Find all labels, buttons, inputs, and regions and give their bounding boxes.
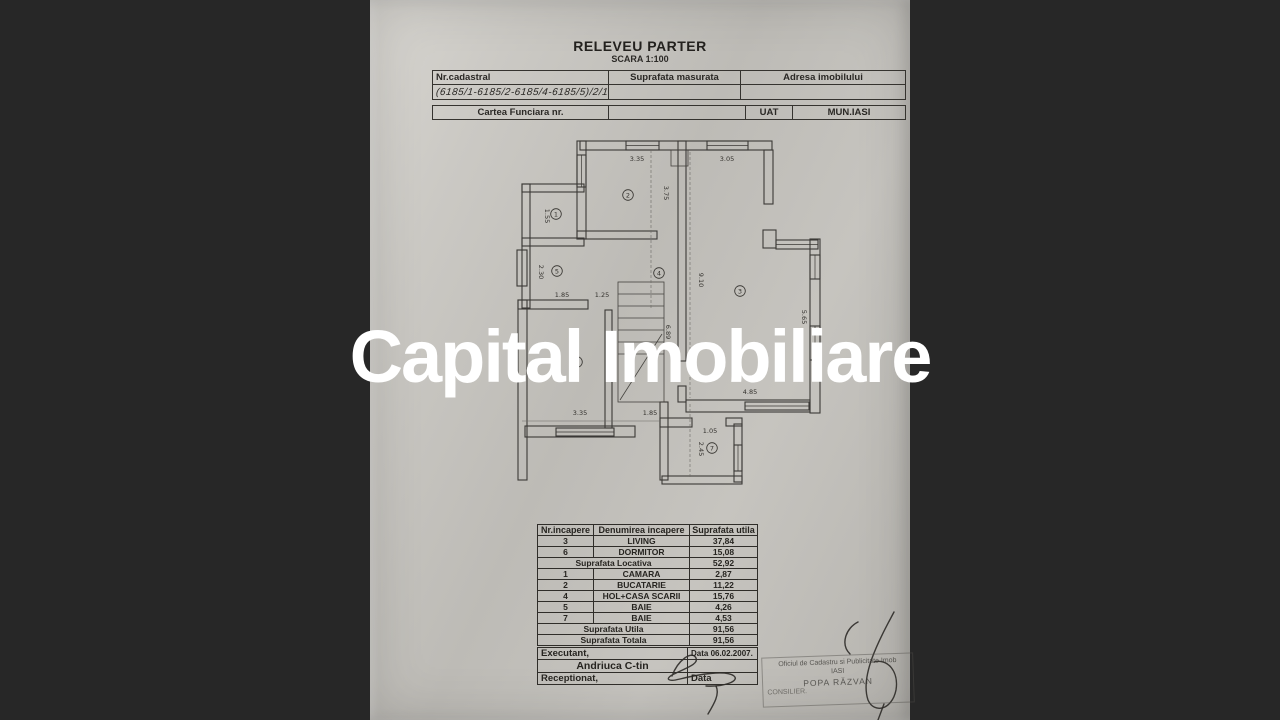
executant-name: Andriuca C-tin — [538, 660, 688, 673]
dimension-label: 3.35 — [630, 155, 644, 163]
room-number-label: 4 — [657, 269, 661, 277]
receptionat-date: Data — [688, 673, 758, 685]
dimension-label: 3.35 — [573, 409, 587, 417]
room-number-label: 1 — [554, 210, 558, 218]
executant-signature-cell — [688, 660, 758, 673]
plan-labels: 3.353.053.751.552.301.851.259.106.895.65… — [537, 155, 808, 456]
cadastre-office-stamp: Oficiul de Cadastru si Publicitate Imob … — [761, 652, 915, 707]
dimension-label: 1.55 — [543, 209, 551, 223]
receptionat-label: Receptionat, — [538, 673, 688, 685]
dimension-label: 2.45 — [697, 442, 705, 456]
rooms-table: Nr.incapere Denumirea incapere Suprafata… — [537, 524, 758, 646]
executant-label: Executant, — [538, 648, 688, 660]
agency-watermark: Capital Imobiliare — [0, 316, 1280, 397]
rooms-table-row: 5BAIE4,26 — [538, 602, 758, 613]
dimension-label: 2.30 — [537, 265, 545, 279]
dimension-label: 1.85 — [643, 409, 657, 417]
rooms-table-row: Suprafata Utila91,56 — [538, 624, 758, 635]
executant-date: Data 06.02.2007. — [688, 648, 758, 660]
rooms-table-row: 3LIVING37,84 — [538, 536, 758, 547]
rooms-table-row: Suprafata Totala91,56 — [538, 635, 758, 646]
room-number-label: 2 — [626, 191, 630, 199]
rooms-table-row: 2BUCATARIE11,22 — [538, 580, 758, 591]
room-number-label: 5 — [555, 267, 559, 275]
rooms-table-row: Suprafata Locativa52,92 — [538, 558, 758, 569]
room-number-label: 3 — [738, 287, 742, 295]
rooms-table-header-name: Denumirea incapere — [594, 525, 690, 536]
rooms-table-row: 4HOL+CASA SCARII15,76 — [538, 591, 758, 602]
dimension-label: 3.05 — [720, 155, 734, 163]
dimension-label: 1.85 — [555, 291, 569, 299]
dimension-label: 1.05 — [703, 427, 717, 435]
rooms-table-header-area: Suprafata utila — [690, 525, 758, 536]
dimension-label: 9.10 — [697, 273, 705, 287]
dimension-label: 1.25 — [595, 291, 609, 299]
rooms-table-row: 6DORMITOR15,08 — [538, 547, 758, 558]
rooms-table-header-nr: Nr.incapere — [538, 525, 594, 536]
room-number-label: 7 — [710, 444, 714, 452]
rooms-table-row: 7BAIE4,53 — [538, 613, 758, 624]
rooms-table-row: 1CAMARA2,87 — [538, 569, 758, 580]
signature-block-table: Executant, Data 06.02.2007. Andriuca C-t… — [537, 647, 758, 685]
dimension-label: 3.75 — [662, 186, 670, 200]
